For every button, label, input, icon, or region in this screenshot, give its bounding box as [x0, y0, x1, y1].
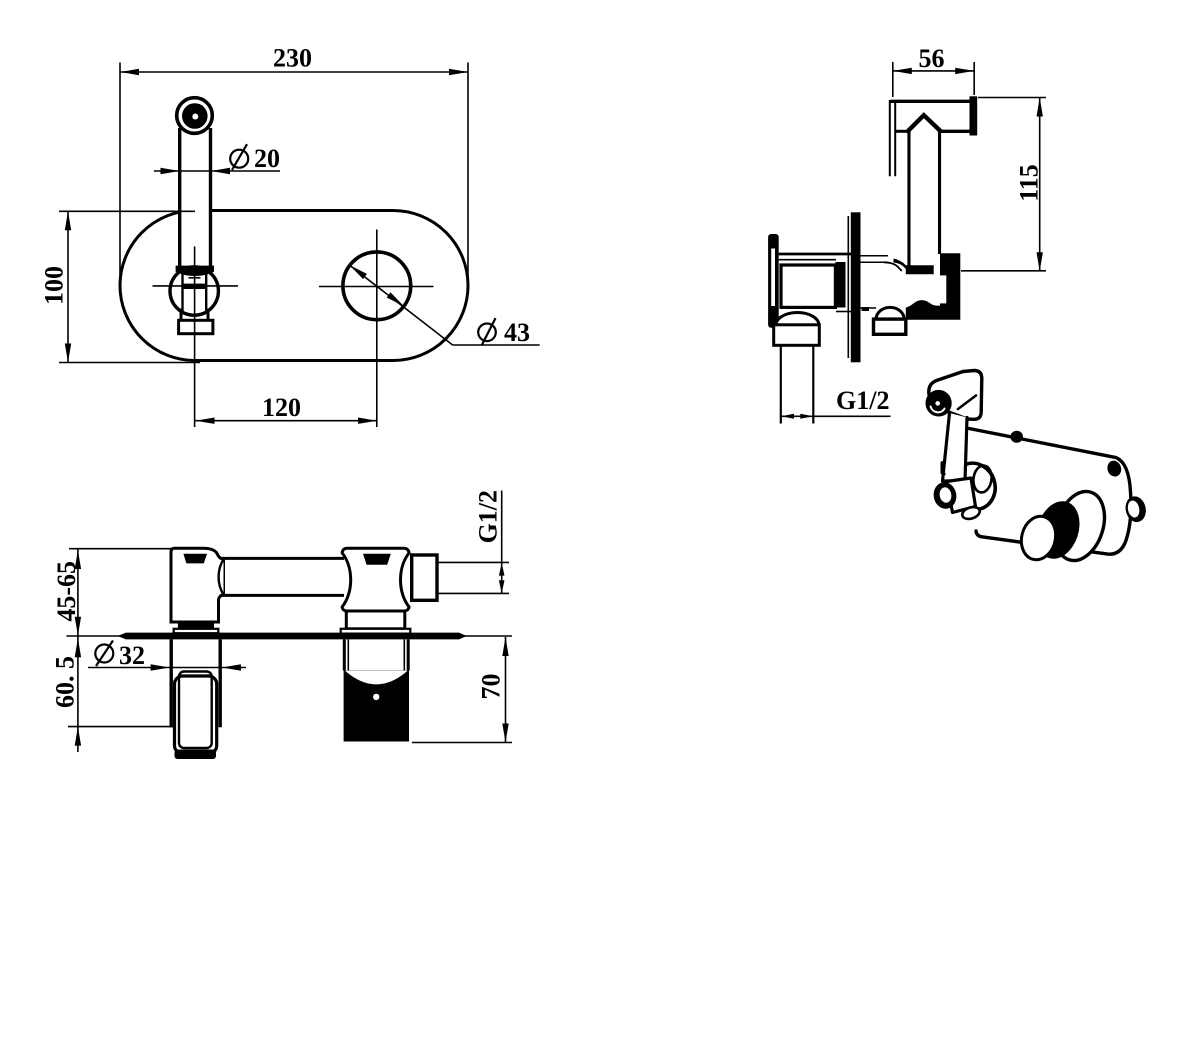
- svg-text:43: 43: [504, 318, 530, 347]
- svg-text:100: 100: [40, 266, 69, 305]
- svg-text:20: 20: [254, 144, 280, 173]
- svg-text:230: 230: [273, 44, 312, 73]
- svg-text:56: 56: [919, 44, 945, 73]
- svg-text:G1/2: G1/2: [836, 386, 889, 415]
- svg-text:45-65: 45-65: [52, 561, 81, 622]
- svg-text:60. 5: 60. 5: [51, 656, 80, 708]
- svg-text:32: 32: [119, 641, 145, 670]
- svg-text:70: 70: [477, 674, 506, 700]
- svg-text:G1/2: G1/2: [474, 490, 503, 543]
- svg-text:115: 115: [1015, 164, 1044, 202]
- svg-text:120: 120: [262, 393, 301, 422]
